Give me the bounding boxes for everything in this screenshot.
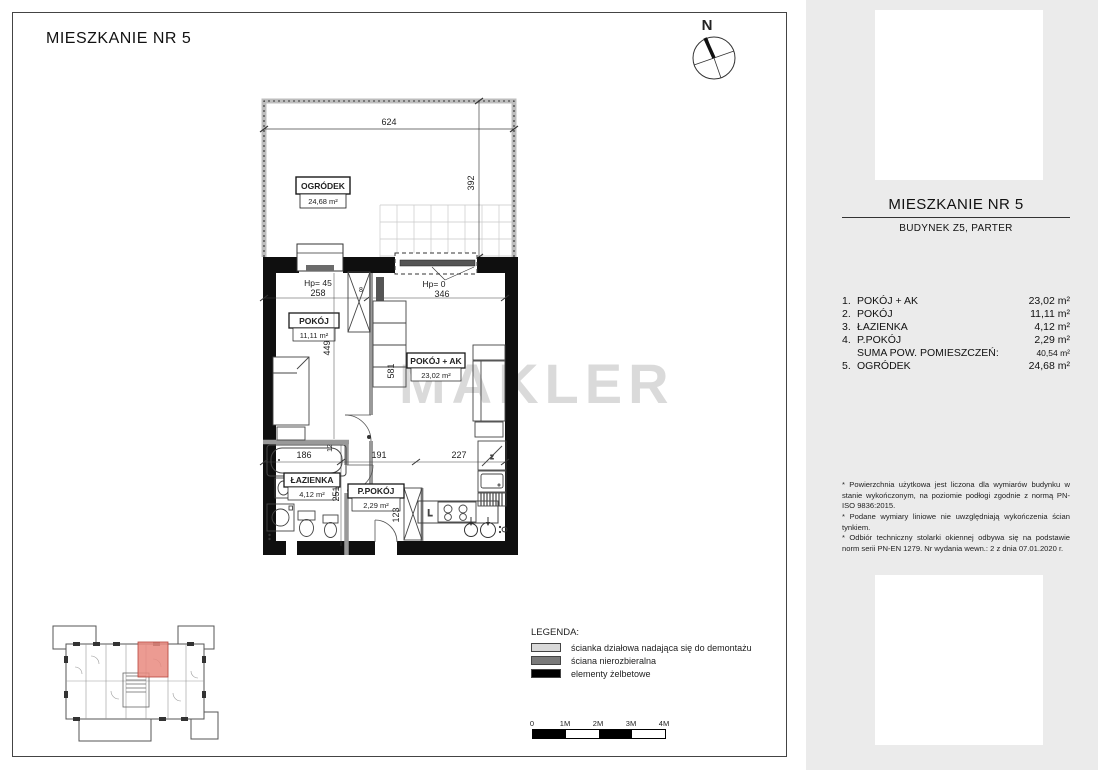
wardrobe: [348, 272, 370, 332]
footnote: * Powierzchnia użytkowa jest liczona dla…: [842, 480, 1070, 512]
bed: [273, 357, 309, 440]
building-subtitle: BUDYNEK Z5, PARTER: [842, 223, 1070, 234]
kitchen-counter: L: [418, 501, 498, 523]
svg-text:581: 581: [386, 363, 396, 378]
hall-closet: [404, 488, 422, 540]
legend-item: elementy żelbetowe: [531, 667, 752, 680]
scale-bar-labels: 0 1M 2M 3M 4M: [531, 719, 681, 729]
svg-text:227: 227: [451, 450, 466, 460]
garden-label: OGRÓDEK 24,68 m²: [296, 177, 350, 208]
logo-placeholder-top: [875, 10, 1043, 180]
svg-text:Hp= 45: Hp= 45: [304, 278, 332, 288]
svg-text:11,11 m²: 11,11 m²: [300, 331, 329, 340]
balcony-door: [395, 253, 477, 280]
legend-swatch-concrete: [531, 669, 561, 678]
legend-swatch-partition: [531, 643, 561, 652]
divider: [842, 217, 1070, 218]
footnotes: * Powierzchnia użytkowa jest liczona dla…: [842, 480, 1070, 554]
room-area-row: 5. OGRÓDEK 24,68 m²: [842, 360, 1070, 373]
room-label-pokoj-ak: POKÓJ + AK 23,02 m²: [407, 353, 465, 381]
room-area-row: 4. P.POKÓJ 2,29 m²: [842, 334, 1070, 347]
room-area-list: 1. POKÓJ + AK 23,02 m² 2. POKÓJ 11,11 m²…: [842, 295, 1070, 373]
svg-text:2,29 m²: 2,29 m²: [363, 501, 389, 510]
bidet: [323, 515, 338, 538]
window-left: [297, 244, 343, 271]
svg-text:4,12 m²: 4,12 m²: [299, 490, 325, 499]
svg-text:ŁAZIENKA: ŁAZIENKA: [291, 475, 334, 485]
svg-text:449: 449: [322, 340, 332, 355]
legend: LEGENDA: ścianka działowa nadająca się d…: [531, 627, 752, 680]
building-overview: [41, 611, 231, 763]
washer-connections: [465, 517, 507, 538]
garden-paving-grid: [380, 205, 514, 257]
scale-bar: 0 1M 2M 3M 4M: [531, 719, 681, 739]
stove: [438, 502, 476, 522]
svg-text:P.POKÓJ: P.POKÓJ: [358, 485, 395, 496]
svg-text:251: 251: [331, 486, 341, 501]
sheet: MIESZKANIE NR 5 MAKLER 624 392: [0, 0, 1098, 770]
svg-text:24,68 m²: 24,68 m²: [308, 197, 338, 206]
svg-text:POKÓJ + AK: POKÓJ + AK: [410, 355, 462, 366]
toilet: [298, 511, 315, 537]
svg-text:N: N: [702, 17, 713, 34]
svg-text:23,02 m²: 23,02 m²: [421, 371, 451, 380]
legend-swatch-structural: [531, 656, 561, 665]
top-dimensions: Hp= 45 258 Hp= 0 346 8: [260, 278, 509, 301]
footnote: * Odbiór techniczny stolarki okiennej od…: [842, 533, 1070, 554]
svg-text:Hp= 0: Hp= 0: [423, 279, 446, 289]
room-area-row: 1. POKÓJ + AK 23,02 m²: [842, 295, 1070, 308]
svg-text:z: z: [490, 454, 494, 461]
apartment-title: MIESZKANIE NR 5: [842, 196, 1070, 213]
room-label-pokoj: POKÓJ 11,11 m²: [289, 313, 339, 341]
svg-text:L: L: [427, 508, 432, 518]
svg-text:12: 12: [327, 444, 334, 452]
legend-item: ścianka działowa nadająca się do demonta…: [531, 641, 752, 654]
svg-text:123: 123: [391, 507, 401, 522]
svg-text:OGRÓDEK: OGRÓDEK: [301, 180, 346, 191]
svg-text:POKÓJ: POKÓJ: [299, 315, 329, 326]
svg-text:191: 191: [371, 450, 386, 460]
fridge: z: [478, 441, 506, 470]
scale-bar-segments: [532, 729, 666, 739]
north-arrow: N: [693, 17, 735, 79]
svg-text:392: 392: [466, 175, 476, 190]
sofa-and-units: [473, 345, 505, 437]
logo-placeholder-bottom: [875, 575, 1043, 745]
legend-title: LEGENDA:: [531, 627, 752, 638]
garden-dim-depth: 392: [466, 98, 483, 260]
drawing-frame: MIESZKANIE NR 5 MAKLER 624 392: [12, 12, 787, 757]
footnote: * Podane wymiary liniowe nie uwzględniaj…: [842, 512, 1070, 533]
svg-text:346: 346: [434, 289, 449, 299]
svg-text:258: 258: [310, 288, 325, 298]
room-area-row: 2. POKÓJ 11,11 m²: [842, 308, 1070, 321]
sidebar: MIESZKANIE NR 5 BUDYNEK Z5, PARTER 1. PO…: [806, 0, 1098, 770]
svg-text:186: 186: [296, 450, 311, 460]
room-label-ppokoj: P.POKÓJ 2,29 m²: [348, 484, 404, 511]
apartment-info-header: MIESZKANIE NR 5 BUDYNEK Z5, PARTER: [842, 196, 1070, 234]
room-area-row: 3. ŁAZIENKA 4,12 m²: [842, 321, 1070, 334]
svg-text:624: 624: [381, 117, 396, 127]
legend-item: ściana nierozbieralna: [531, 654, 752, 667]
highlighted-unit: [138, 642, 168, 677]
room-area-sum-row: SUMA POW. POMIESZCZEŃ: 40,54 m²: [842, 347, 1070, 360]
